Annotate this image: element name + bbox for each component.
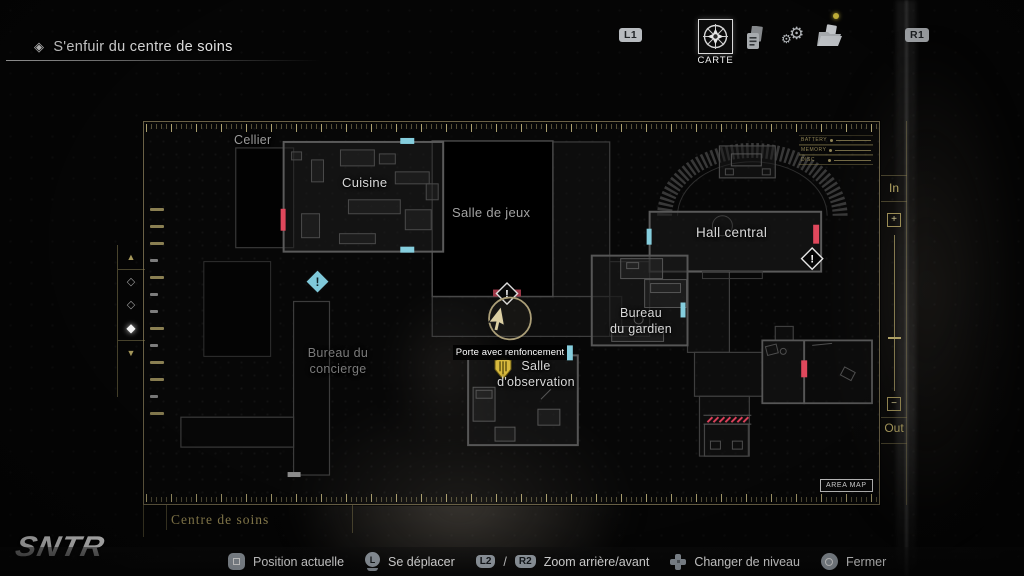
room-label-bureau-gardien: Bureau du gardien — [591, 306, 691, 337]
r1-button[interactable]: R1 — [905, 28, 929, 42]
left-stick-icon: L — [365, 552, 380, 571]
map-screen: ◈ S'enfuir du centre de soins L1 R1 CART… — [0, 0, 1024, 576]
zoom-out-button[interactable] — [887, 397, 901, 411]
area-map-badge: AREA MAP — [820, 479, 873, 492]
tab-notes[interactable] — [744, 26, 766, 50]
objective-text: S'enfuir du centre de soins — [53, 39, 232, 55]
room-label-bureau-concierge: Bureau du concierge — [294, 346, 382, 377]
square-button-icon — [228, 553, 245, 570]
notification-dot — [833, 13, 839, 19]
objective-underline — [6, 60, 320, 61]
l2-button-icon: L2 — [476, 555, 496, 568]
cyan-alert-marker: ! — [306, 270, 330, 294]
zoom-slider-track[interactable] — [894, 235, 895, 391]
room-label-cellier: Cellier — [234, 133, 272, 147]
room-label-salle-de-jeux: Salle de jeux — [452, 205, 530, 220]
elevation-ruler — [150, 208, 170, 429]
svg-text:!: ! — [316, 275, 320, 289]
zoom-slider-handle[interactable] — [888, 337, 901, 339]
hint-move[interactable]: L Se déplacer — [365, 552, 455, 571]
zoom-sidebar: In Out — [881, 121, 907, 505]
circle-button-icon — [821, 553, 838, 570]
svg-text:!: ! — [810, 254, 814, 266]
floorplan: ! ! ! — [144, 122, 879, 505]
room-label-cuisine: Cuisine — [342, 175, 387, 190]
room-label-salle-observation: Salle d'observation — [481, 359, 591, 390]
tab-files[interactable] — [817, 24, 843, 48]
hint-close[interactable]: Fermer — [821, 553, 886, 570]
l1-button[interactable]: L1 — [619, 28, 642, 42]
objective-diamond-icon: ◈ — [34, 39, 44, 55]
frame-tick — [143, 505, 144, 537]
gear-icon-small: ⚙ — [781, 32, 792, 46]
region-name: Centre de soins — [171, 512, 269, 528]
level-item-current[interactable]: ◆ — [126, 316, 135, 340]
map-legend-decor: BATTERY MEMORY DISC — [799, 135, 873, 165]
tab-map-label: CARTE — [694, 55, 737, 66]
objective-banner: ◈ S'enfuir du centre de soins — [34, 39, 233, 55]
hint-change-level[interactable]: Changer de niveau — [670, 554, 800, 570]
dpad-icon — [670, 554, 686, 570]
hint-position[interactable]: Position actuelle — [228, 553, 344, 570]
room-label-hall-central: Hall central — [696, 225, 767, 240]
tab-settings[interactable]: ⚙ ⚙ — [781, 24, 809, 50]
tab-map[interactable] — [698, 19, 733, 54]
area-map-panel[interactable]: ! ! ! — [143, 121, 880, 505]
frame-tick — [352, 505, 353, 533]
compass-icon — [702, 23, 729, 50]
level-item-2[interactable]: ◇ — [127, 270, 135, 293]
door-tooltip: Porte avec renfoncement — [453, 345, 567, 360]
level-up-button[interactable]: ▲ — [127, 245, 136, 269]
zoom-out-label: Out — [881, 421, 907, 435]
frame-tick — [166, 505, 167, 530]
hint-zoom[interactable]: L2 / R2 Zoom arrière/avant — [476, 555, 650, 569]
level-down-button[interactable]: ▼ — [127, 341, 136, 365]
zoom-in-label: In — [881, 181, 907, 195]
room-cuisine — [284, 142, 444, 252]
r2-button-icon: R2 — [515, 555, 536, 568]
level-selector: ▲ ◇ ◇ ◆ ▼ — [117, 245, 144, 397]
control-hints-bar: Position actuelle L Se déplacer L2 / R2 … — [0, 547, 1024, 576]
zoom-in-button[interactable] — [887, 213, 901, 227]
level-item-1[interactable]: ◇ — [127, 293, 135, 316]
